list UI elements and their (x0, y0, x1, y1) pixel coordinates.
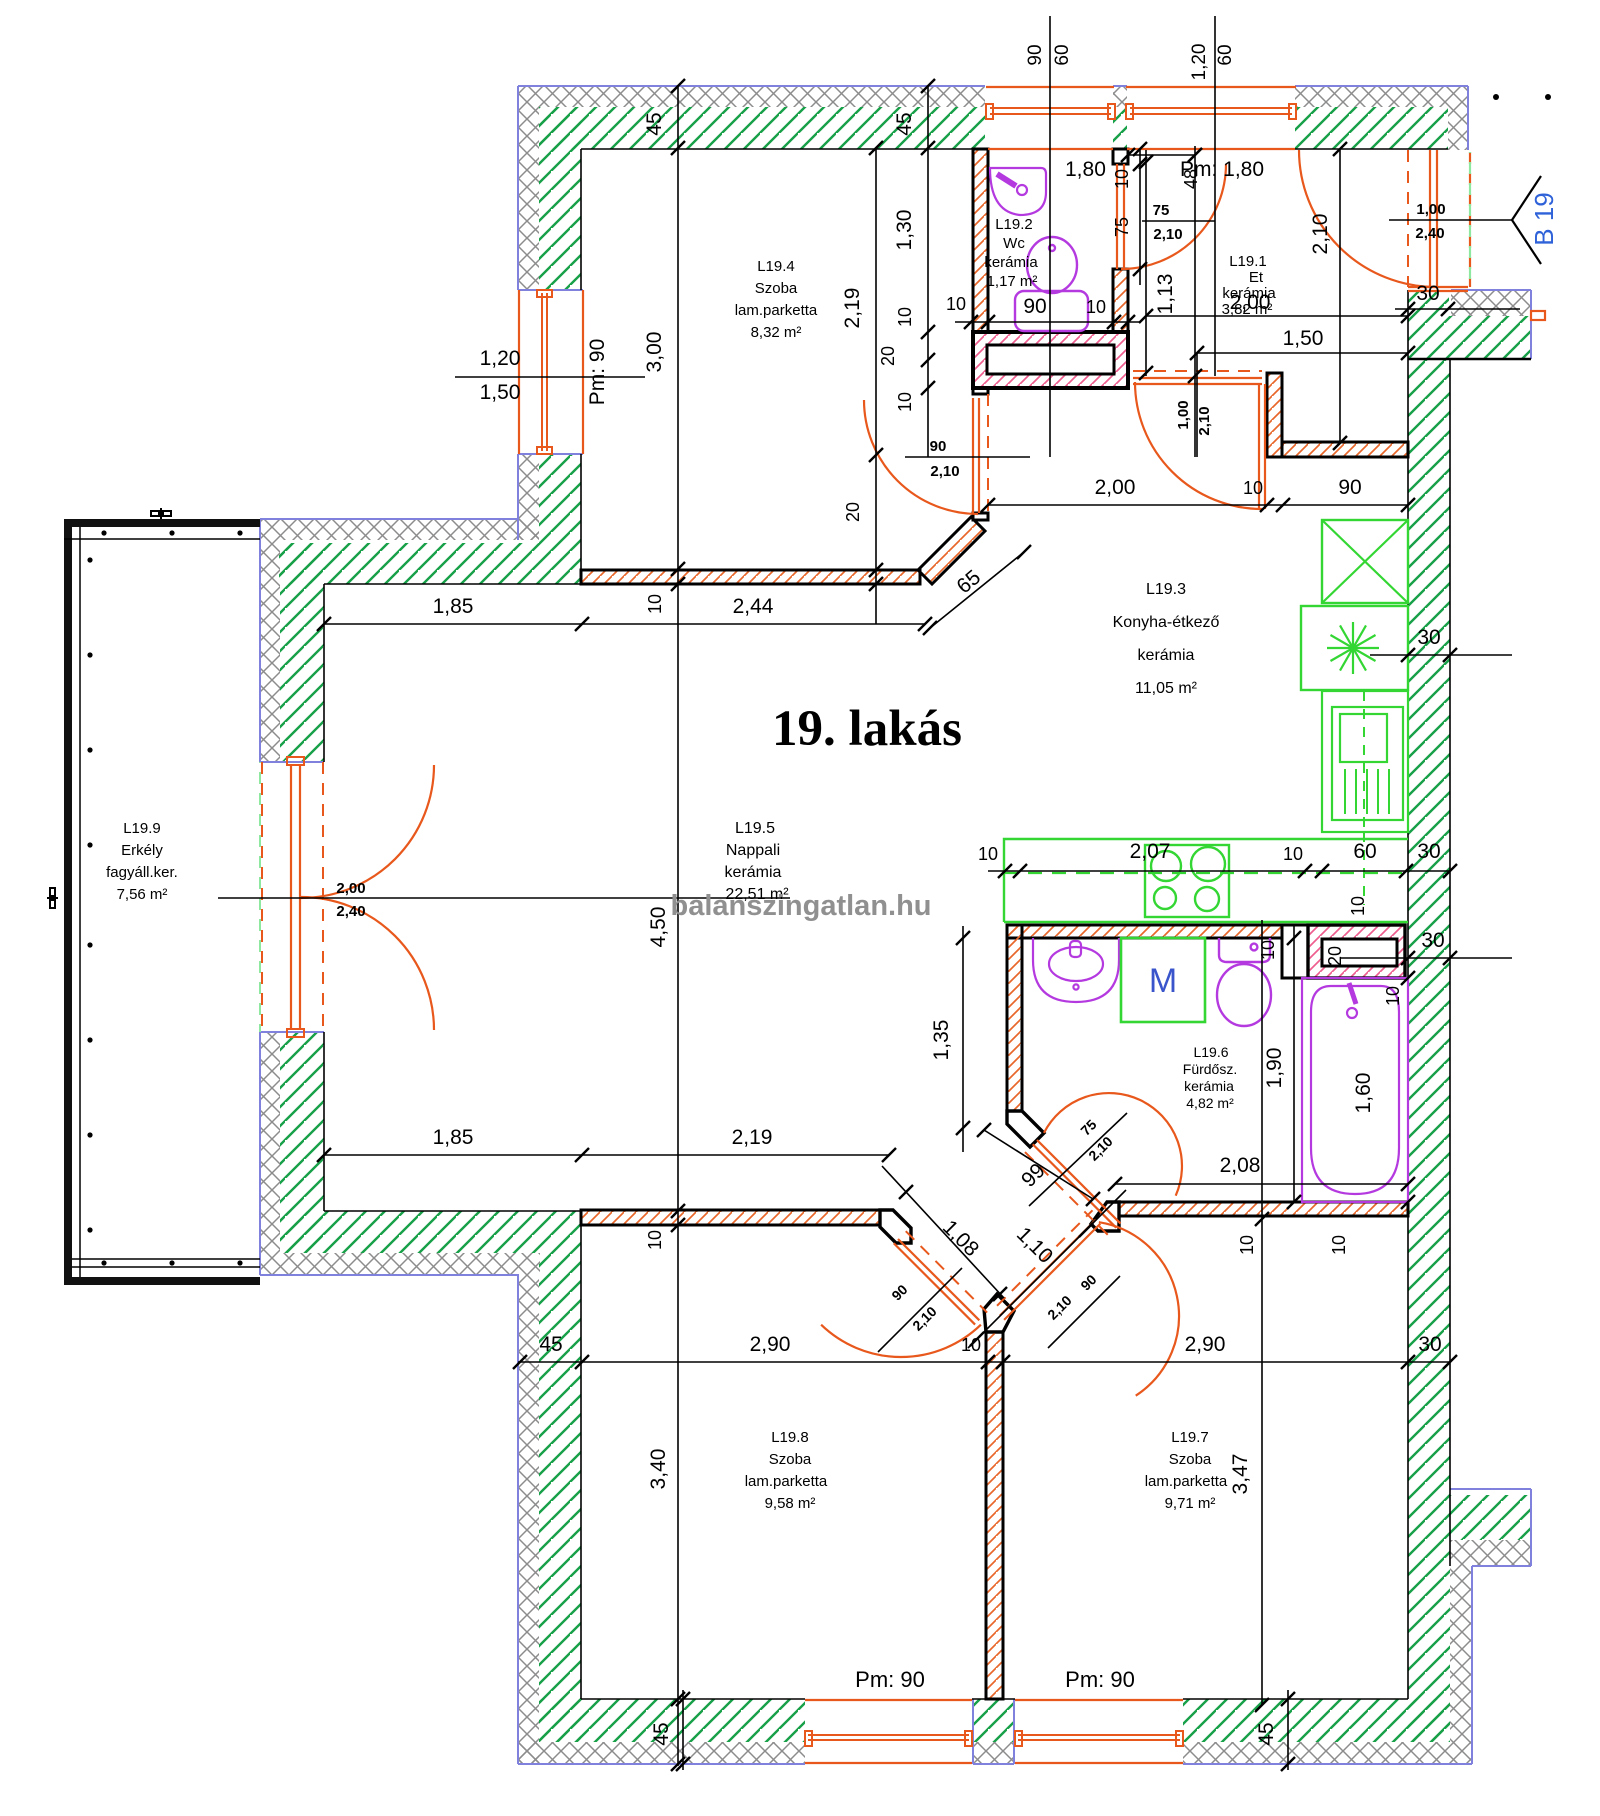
svg-text:10: 10 (1383, 986, 1403, 1006)
svg-text:4,82 m²: 4,82 m² (1186, 1095, 1234, 1111)
svg-text:7,56 m²: 7,56 m² (117, 886, 168, 903)
svg-text:3,00: 3,00 (643, 332, 666, 373)
svg-text:kerámia: kerámia (984, 254, 1038, 271)
svg-text:2,07: 2,07 (1130, 840, 1171, 863)
svg-text:Konyha-étkező: Konyha-étkező (1113, 614, 1220, 631)
svg-text:10: 10 (978, 844, 998, 864)
svg-text:1,17 m²: 1,17 m² (987, 273, 1038, 290)
svg-text:90: 90 (1023, 295, 1046, 318)
svg-text:B 19: B 19 (1529, 192, 1559, 246)
svg-text:Wc: Wc (1003, 235, 1025, 252)
svg-text:Szoba: Szoba (1169, 1451, 1212, 1468)
svg-text:10: 10 (645, 1230, 665, 1250)
svg-text:10: 10 (1329, 1235, 1349, 1255)
svg-text:60: 60 (1353, 840, 1376, 863)
svg-text:45: 45 (1255, 1722, 1278, 1745)
svg-text:2,90: 2,90 (1185, 1333, 1226, 1356)
svg-text:kerámia: kerámia (1184, 1078, 1234, 1094)
svg-text:20: 20 (878, 346, 898, 366)
svg-text:L19.2: L19.2 (995, 216, 1033, 233)
svg-text:lam.parketta: lam.parketta (735, 302, 818, 319)
svg-text:60: 60 (1052, 44, 1073, 65)
svg-text:1,60: 1,60 (1352, 1073, 1375, 1114)
svg-text:L19.1: L19.1 (1229, 253, 1267, 270)
svg-text:L19.5: L19.5 (735, 820, 775, 837)
svg-text:45: 45 (643, 112, 666, 135)
svg-text:1,85: 1,85 (433, 1126, 474, 1149)
svg-text:Pm: 1,80: Pm: 1,80 (1180, 158, 1264, 181)
svg-text:Pm: 90: Pm: 90 (586, 339, 609, 406)
svg-text:45: 45 (539, 1333, 562, 1356)
svg-text:L19.6: L19.6 (1193, 1044, 1228, 1060)
svg-text:1,50: 1,50 (480, 381, 521, 404)
svg-text:Szoba: Szoba (755, 280, 798, 297)
svg-text:1,13: 1,13 (1154, 274, 1177, 315)
svg-text:2,19: 2,19 (841, 288, 864, 329)
svg-text:90: 90 (930, 438, 947, 455)
svg-text:balanszingatlan.hu: balanszingatlan.hu (670, 890, 931, 922)
svg-text:20: 20 (843, 502, 863, 522)
svg-text:L19.3: L19.3 (1146, 581, 1186, 598)
svg-text:fagyáll.ker.: fagyáll.ker. (106, 864, 178, 881)
svg-text:11,05 m²: 11,05 m² (1135, 680, 1198, 697)
svg-text:2,90: 2,90 (750, 1333, 791, 1356)
svg-text:8,32 m²: 8,32 m² (751, 324, 802, 341)
svg-text:10: 10 (946, 294, 966, 314)
svg-text:9,71 m²: 9,71 m² (1165, 1495, 1216, 1512)
svg-text:lam.parketta: lam.parketta (1145, 1473, 1228, 1490)
svg-text:90: 90 (1338, 476, 1361, 499)
svg-text:75: 75 (1153, 202, 1170, 219)
svg-text:Fürdősz.: Fürdősz. (1183, 1061, 1237, 1077)
svg-text:10: 10 (645, 594, 665, 614)
svg-text:10: 10 (1258, 940, 1278, 960)
svg-text:M: M (1149, 962, 1177, 1000)
svg-text:kerámia: kerámia (725, 864, 782, 881)
svg-text:lam.parketta: lam.parketta (745, 1473, 828, 1490)
svg-text:1,00: 1,00 (1416, 201, 1445, 218)
svg-text:kerámia: kerámia (1222, 285, 1276, 302)
svg-text:90: 90 (1025, 44, 1046, 65)
svg-text:2,08: 2,08 (1220, 1154, 1261, 1177)
svg-text:L19.7: L19.7 (1171, 1429, 1209, 1446)
svg-text:2,10: 2,10 (930, 463, 959, 480)
svg-text:2,44: 2,44 (733, 595, 774, 618)
svg-text:2,10: 2,10 (1153, 226, 1182, 243)
svg-text:45: 45 (893, 112, 916, 135)
svg-text:1,85: 1,85 (433, 595, 474, 618)
svg-text:1,80: 1,80 (1065, 158, 1106, 181)
svg-text:Erkély: Erkély (121, 842, 163, 859)
svg-text:L19.9: L19.9 (123, 820, 161, 837)
svg-text:1,20: 1,20 (480, 347, 521, 370)
svg-text:19. lakás: 19. lakás (772, 701, 962, 757)
svg-text:10: 10 (1112, 169, 1132, 189)
svg-text:Et: Et (1249, 269, 1264, 286)
svg-text:10: 10 (1243, 478, 1263, 498)
svg-text:4,50: 4,50 (647, 907, 670, 948)
svg-text:10: 10 (1283, 844, 1303, 864)
svg-text:30: 30 (1416, 282, 1439, 305)
svg-text:30: 30 (1417, 626, 1440, 649)
svg-text:10: 10 (1086, 297, 1106, 317)
svg-text:60: 60 (1215, 44, 1236, 65)
svg-text:2,10: 2,10 (1196, 406, 1213, 435)
svg-text:30: 30 (1417, 840, 1440, 863)
svg-text:L19.4: L19.4 (757, 258, 795, 275)
svg-text:1,20: 1,20 (1189, 44, 1210, 81)
svg-text:20: 20 (1325, 946, 1345, 966)
svg-text:2,00: 2,00 (336, 880, 365, 897)
svg-text:2,19: 2,19 (732, 1126, 773, 1149)
svg-text:1,00: 1,00 (1175, 400, 1192, 429)
svg-text:10: 10 (1237, 1235, 1257, 1255)
svg-text:10: 10 (895, 307, 915, 327)
svg-text:3,40: 3,40 (647, 1449, 670, 1490)
svg-text:L19.8: L19.8 (771, 1429, 809, 1446)
svg-text:1,90: 1,90 (1263, 1048, 1286, 1089)
svg-text:10: 10 (895, 392, 915, 412)
svg-text:2,40: 2,40 (336, 903, 365, 920)
svg-text:Nappali: Nappali (726, 842, 780, 859)
svg-text:Szoba: Szoba (769, 1451, 812, 1468)
svg-text:75: 75 (1112, 217, 1132, 237)
svg-text:3,82 m²: 3,82 m² (1222, 301, 1273, 318)
svg-text:Pm: 90: Pm: 90 (855, 1667, 925, 1692)
svg-text:1,50: 1,50 (1283, 327, 1324, 350)
svg-text:30: 30 (1418, 1333, 1441, 1356)
svg-text:2,40: 2,40 (1415, 225, 1444, 242)
svg-text:2,00: 2,00 (1095, 476, 1136, 499)
svg-text:10: 10 (1348, 896, 1368, 916)
svg-text:kerámia: kerámia (1138, 647, 1195, 664)
svg-text:1,30: 1,30 (893, 210, 916, 251)
svg-text:30: 30 (1421, 929, 1444, 952)
svg-text:1,35: 1,35 (930, 1020, 953, 1061)
svg-text:45: 45 (650, 1722, 673, 1745)
svg-text:9,58 m²: 9,58 m² (765, 1495, 816, 1512)
svg-text:Pm: 90: Pm: 90 (1065, 1667, 1135, 1692)
svg-text:2,10: 2,10 (1309, 214, 1332, 255)
svg-text:3,47: 3,47 (1229, 1454, 1252, 1495)
